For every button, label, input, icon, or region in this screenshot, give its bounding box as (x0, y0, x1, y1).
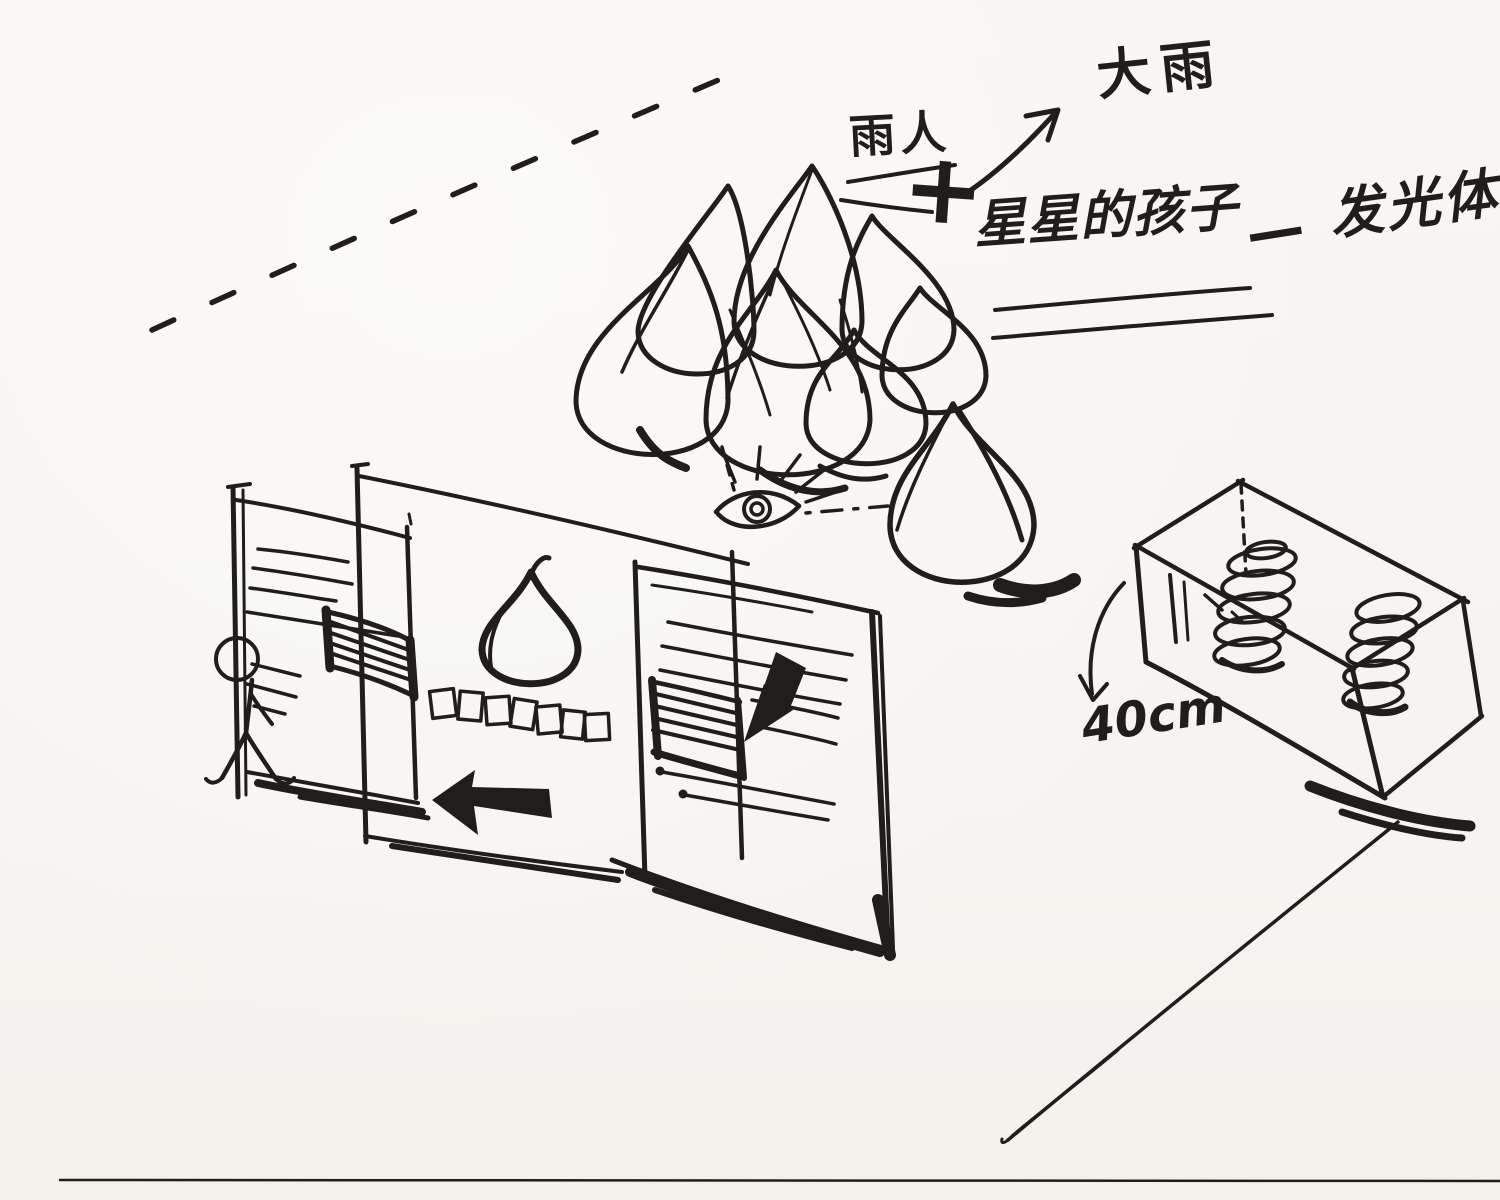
observer-eye (716, 447, 888, 527)
spring-platform (1134, 480, 1482, 838)
stick-figure (206, 638, 294, 783)
height-arrow (1080, 583, 1124, 700)
floor-diagonal (1002, 822, 1398, 1143)
label-dash: — (1242, 197, 1308, 263)
label-heavy-rain: 大雨 (1094, 37, 1227, 104)
exhibit-panel-middle (359, 476, 748, 880)
exhibit-panel-right (612, 552, 893, 955)
single-droplet (890, 404, 1074, 603)
coil-spring-left (1213, 539, 1298, 670)
left-arrow (432, 770, 552, 835)
paper-edge (60, 1180, 1500, 1181)
underline-star-children (993, 288, 1272, 338)
sketch-drawing (0, 0, 1500, 1200)
sketch-paper: 雨人 大雨 + 星星的孩子 — 发光体 40cm (0, 0, 1500, 1200)
